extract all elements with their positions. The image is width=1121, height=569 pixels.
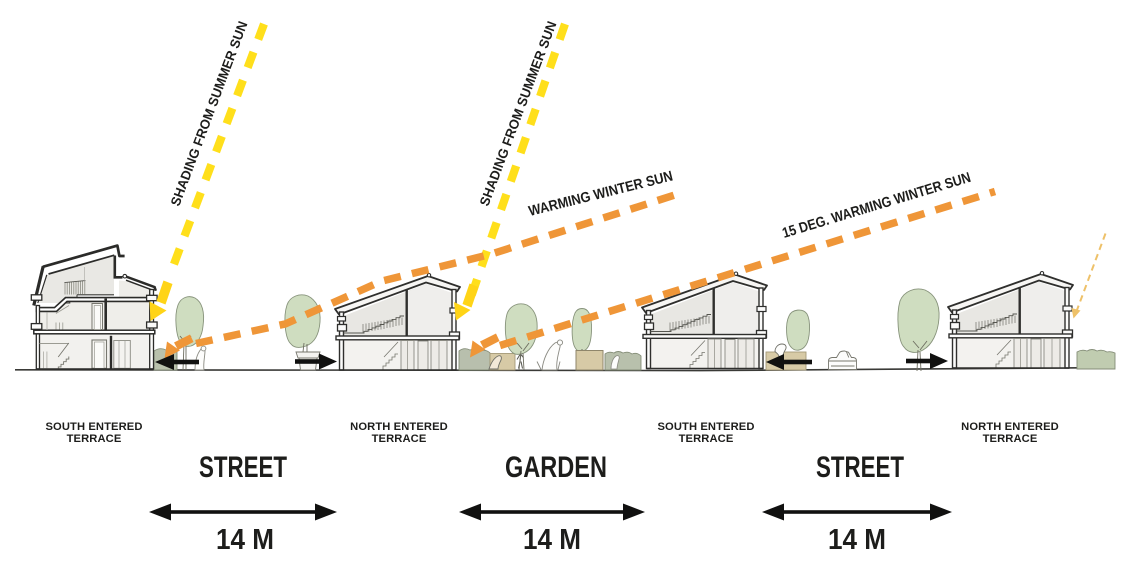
svg-text:TERRACE: TERRACE: [679, 433, 734, 445]
svg-text:14 M: 14 M: [523, 524, 581, 556]
svg-text:TERRACE: TERRACE: [983, 433, 1038, 445]
svg-text:14 M: 14 M: [216, 524, 274, 556]
svg-text:TERRACE: TERRACE: [67, 433, 122, 445]
svg-text:SHADING FROM SUMMER SUN: SHADING FROM SUMMER SUN: [477, 19, 560, 208]
svg-text:GARDEN: GARDEN: [505, 451, 607, 484]
svg-text:NORTH ENTERED: NORTH ENTERED: [961, 421, 1059, 433]
svg-text:SOUTH ENTERED: SOUTH ENTERED: [657, 421, 754, 433]
svg-text:14 M: 14 M: [828, 524, 886, 556]
svg-text:NORTH ENTERED: NORTH ENTERED: [350, 421, 448, 433]
svg-text:STREET: STREET: [199, 451, 287, 484]
svg-text:WARMING WINTER SUN: WARMING WINTER SUN: [527, 169, 674, 220]
svg-text:TERRACE: TERRACE: [372, 433, 427, 445]
svg-text:SOUTH ENTERED: SOUTH ENTERED: [45, 421, 142, 433]
svg-text:STREET: STREET: [816, 451, 904, 484]
